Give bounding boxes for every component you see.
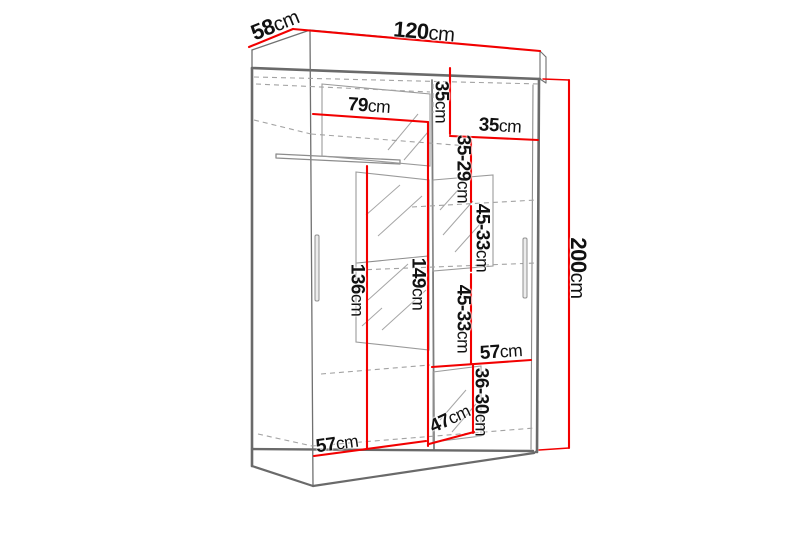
dim-label-mid-interior-height: 149cm <box>409 258 428 311</box>
dim-label-left-interior-height: 136cm <box>348 264 367 317</box>
wardrobe-dimension-diagram: 58cm 120cm 79cm 35cm 35cm 35-29cm 45-33c… <box>0 0 800 533</box>
dim-label-total-height: 200cm <box>567 237 589 298</box>
dim-label-left-section-width: 79cm <box>347 95 391 117</box>
dim-label-top-right-height: 35cm <box>432 81 451 123</box>
left-door-handle <box>315 235 319 301</box>
dim-label-top-width: 120cm <box>393 18 456 45</box>
dim-label-shelf-gap-4: 36-30cm <box>472 368 491 436</box>
dim-label-shelf-gap-2: 45-33cm <box>473 204 492 272</box>
dim-label-shelf-gap-1: 35-29cm <box>454 135 473 203</box>
dim-label-shelf-gap-3: 45-33cm <box>454 285 473 353</box>
dim-label-shelf-width-right: 57cm <box>479 341 523 363</box>
dimension-lines <box>249 29 569 456</box>
dim-tick-total-height-top <box>543 79 569 80</box>
wardrobe-drawing <box>0 0 800 533</box>
dim-tick-total-height-bottom <box>539 448 569 450</box>
wardrobe-structure <box>252 30 546 486</box>
right-door-handle <box>523 238 527 298</box>
dim-label-right-section-width: 35cm <box>478 115 521 136</box>
